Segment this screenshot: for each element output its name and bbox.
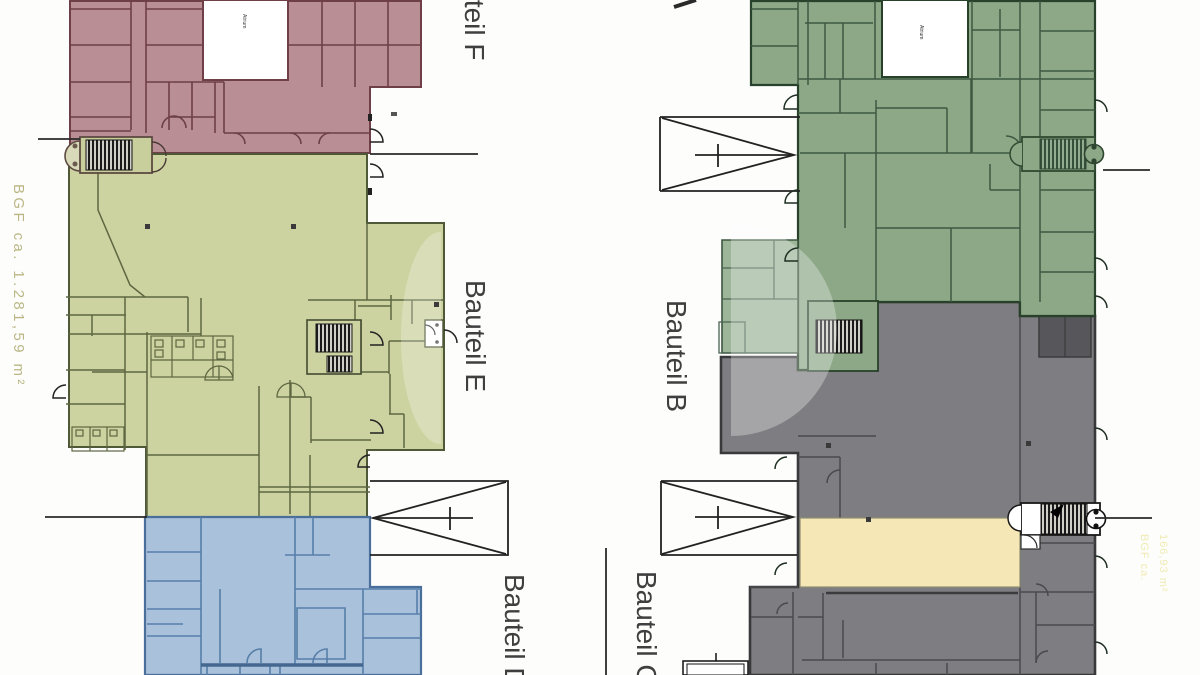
svg-text:BGF ca. 1.281,59 m²: BGF ca. 1.281,59 m² (10, 184, 27, 388)
svg-text:BGF ca.: BGF ca. (1138, 534, 1150, 581)
svg-text:Atrium: Atrium (918, 25, 924, 39)
svg-text:Bauteil C: Bauteil C (631, 571, 662, 675)
svg-text:Bauteil B: Bauteil B (661, 300, 692, 412)
svg-text:Atrium: Atrium (241, 14, 247, 28)
svg-text:Bauteil D: Bauteil D (499, 574, 530, 675)
svg-text:Bauteil E: Bauteil E (460, 280, 491, 392)
svg-text:166,93 m²: 166,93 m² (1157, 534, 1169, 593)
svg-text:Bauteil F: Bauteil F (459, 0, 490, 61)
